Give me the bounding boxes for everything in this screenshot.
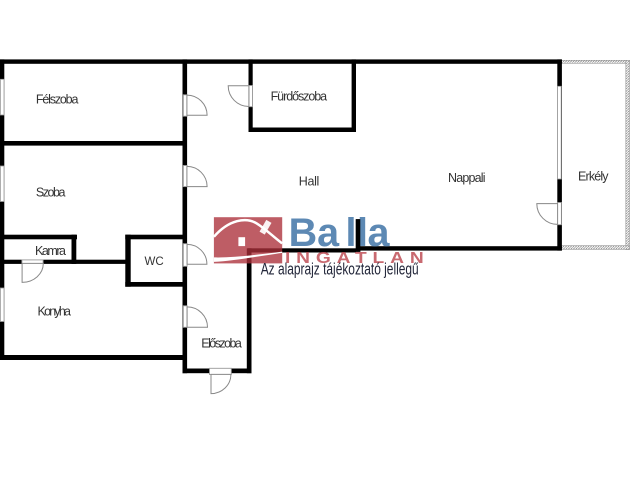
svg-text:Félszoba: Félszoba xyxy=(36,92,79,106)
svg-text:Hall: Hall xyxy=(299,175,320,189)
svg-text:Erkély: Erkély xyxy=(578,170,609,184)
svg-text:Az alaprajz tájékoztató jelleg: Az alaprajz tájékoztató jellegű xyxy=(261,260,419,279)
svg-text:Szoba: Szoba xyxy=(36,185,66,199)
svg-text:WC: WC xyxy=(145,256,164,268)
svg-text:Kamra: Kamra xyxy=(35,244,66,258)
svg-text:Fürdőszoba: Fürdőszoba xyxy=(271,90,328,104)
svg-text:Nappali: Nappali xyxy=(448,171,486,185)
svg-text:Előszoba: Előszoba xyxy=(201,337,242,351)
svg-text:Konyha: Konyha xyxy=(38,305,72,319)
